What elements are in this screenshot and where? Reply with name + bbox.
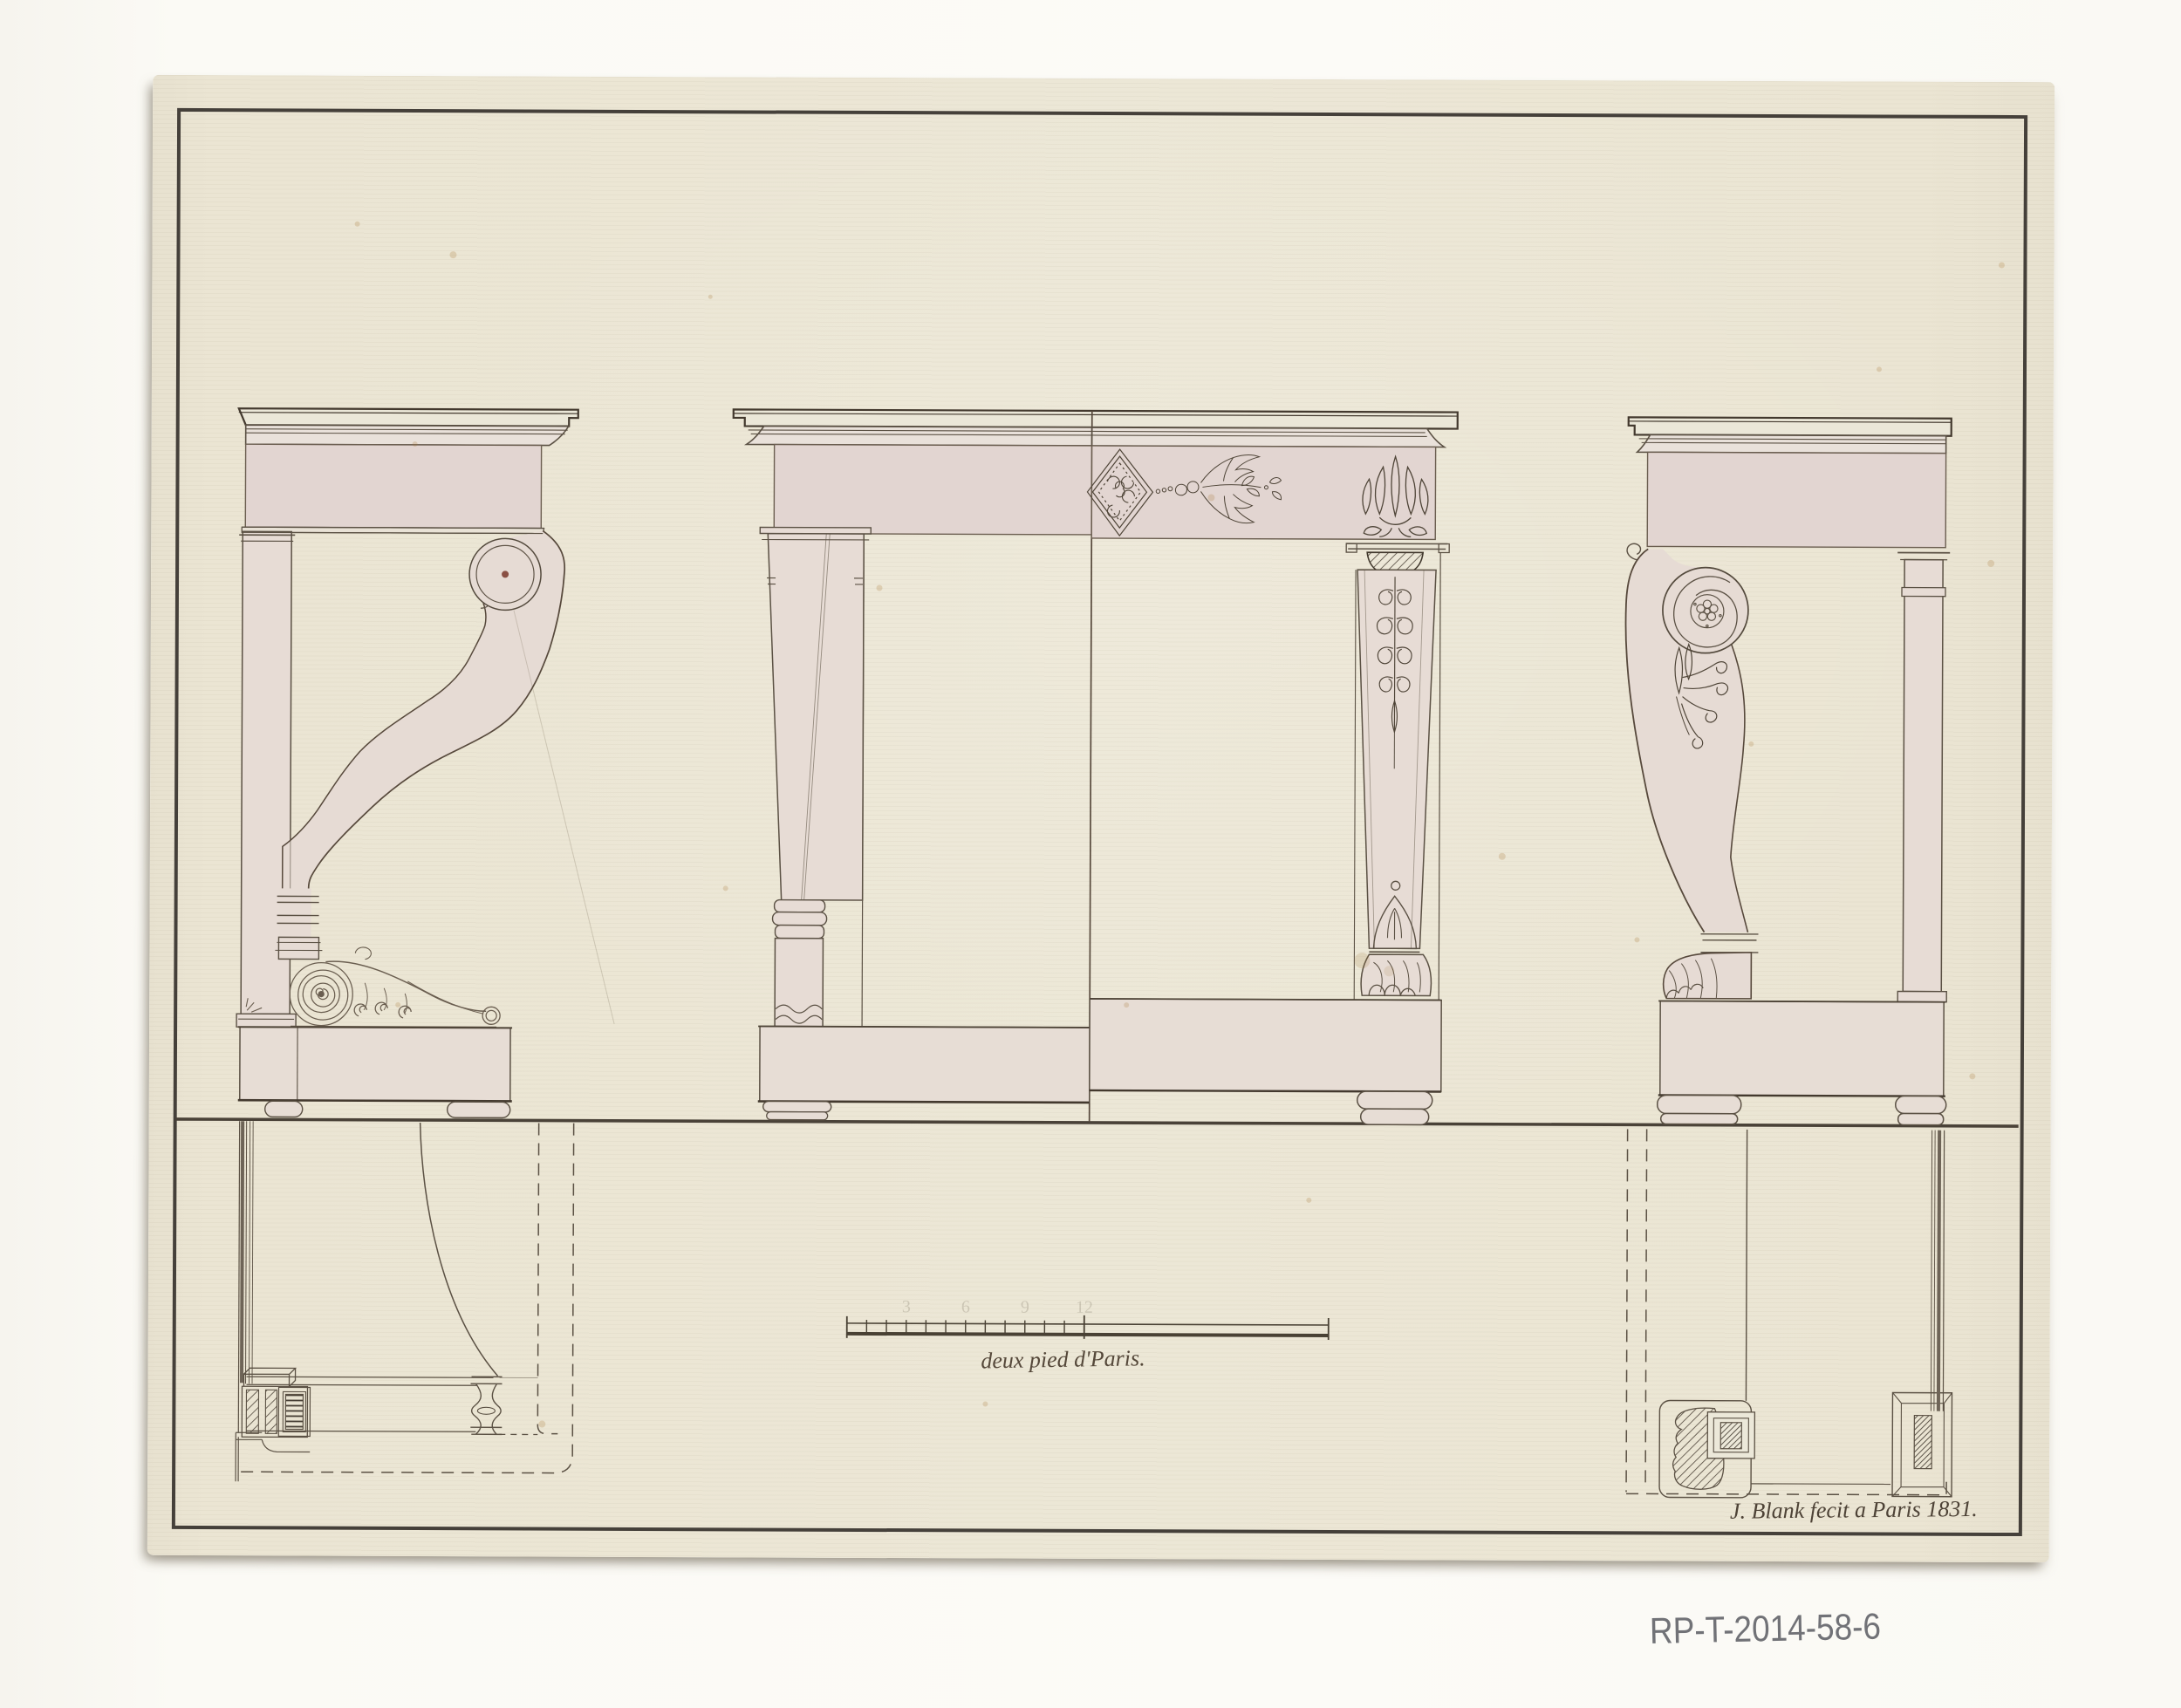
svg-text:deux pied d'Paris.: deux pied d'Paris. [981, 1345, 1145, 1373]
svg-text:J. Blank fecit a Paris 1831.: J. Blank fecit a Paris 1831. [1730, 1496, 1978, 1524]
svg-text:3: 3 [902, 1297, 911, 1316]
svg-text:6: 6 [961, 1297, 970, 1316]
svg-text:9: 9 [1021, 1298, 1029, 1317]
svg-text:12: 12 [1076, 1298, 1093, 1317]
